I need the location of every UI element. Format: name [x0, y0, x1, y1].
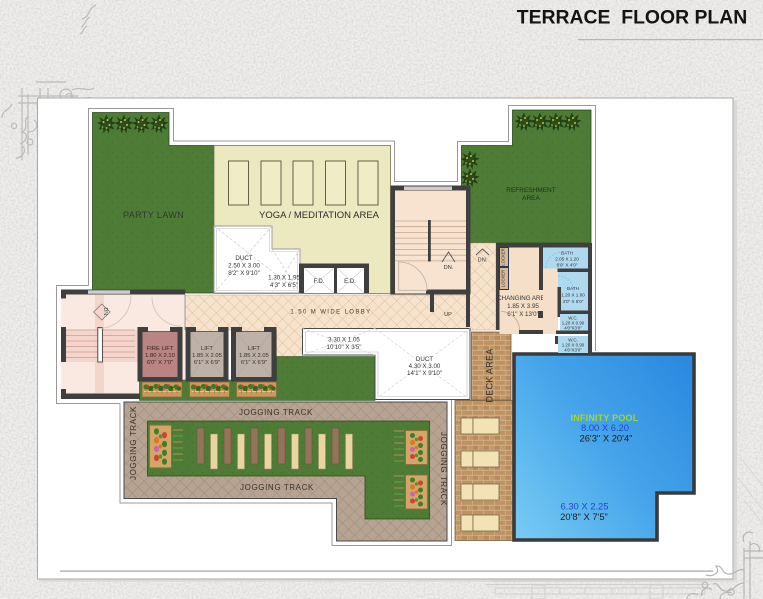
svg-text:2.05 X 1.20: 2.05 X 1.20 — [555, 257, 579, 262]
svg-text:DN.: DN. — [444, 265, 454, 271]
svg-text:DECK AREA: DECK AREA — [485, 348, 495, 402]
svg-text:1.20 X 1.80: 1.20 X 1.80 — [561, 293, 585, 298]
svg-text:1.80 X 2.10: 1.80 X 2.10 — [145, 353, 175, 359]
svg-text:6'1" X 6'9": 6'1" X 6'9" — [241, 360, 267, 366]
svg-text:3.30 X 1.05: 3.30 X 1.05 — [328, 337, 360, 344]
svg-text:BATH: BATH — [561, 251, 573, 256]
svg-text:6'9" X 4'0": 6'9" X 4'0" — [557, 263, 578, 268]
svg-text:JOGGING TRACK: JOGGING TRACK — [129, 406, 138, 480]
svg-text:6.30 X 2.25: 6.30 X 2.25 — [561, 501, 609, 512]
svg-text:6'1" X 6'9": 6'1" X 6'9" — [194, 360, 220, 366]
svg-text:LOCKER: LOCKER — [501, 248, 506, 265]
svg-text:10'10" X 3'5": 10'10" X 3'5" — [327, 344, 362, 351]
svg-text:DUCT: DUCT — [416, 356, 433, 363]
svg-text:14'1" X 9'10": 14'1" X 9'10" — [407, 370, 442, 377]
svg-text:JOGGING TRACK: JOGGING TRACK — [439, 432, 448, 506]
svg-text:4'0"X3'0": 4'0"X3'0" — [564, 348, 582, 353]
svg-text:REFRESHMENT: REFRESHMENT — [506, 187, 556, 194]
svg-text:LIFT: LIFT — [248, 346, 260, 352]
svg-text:1.85 X 3.95: 1.85 X 3.95 — [507, 303, 539, 310]
svg-text:2.50 X 3.00: 2.50 X 3.00 — [228, 263, 260, 270]
svg-text:26'3" X 20'4": 26'3" X 20'4" — [580, 433, 633, 444]
svg-text:AREA: AREA — [522, 195, 540, 202]
svg-text:YOGA / MEDITATION AREA: YOGA / MEDITATION AREA — [259, 210, 380, 221]
svg-text:PARTY LAWN: PARTY LAWN — [123, 210, 184, 220]
svg-text:8'2" X 9'10": 8'2" X 9'10" — [228, 270, 260, 277]
svg-text:CHANGING AREA: CHANGING AREA — [497, 295, 549, 302]
svg-text:1.30 X 1.95: 1.30 X 1.95 — [268, 275, 300, 282]
svg-text:FIRE LIFT: FIRE LIFT — [147, 346, 174, 352]
svg-text:1.85 X 2.05: 1.85 X 2.05 — [192, 353, 222, 359]
svg-text:4'0"X3'0": 4'0"X3'0" — [564, 326, 582, 331]
svg-text:20'8" X 7'5": 20'8" X 7'5" — [560, 511, 608, 522]
svg-text:6'1" X 13'0": 6'1" X 13'0" — [507, 311, 539, 318]
svg-text:BATH: BATH — [567, 286, 579, 291]
svg-text:E.D.: E.D. — [344, 279, 356, 285]
svg-text:F.D.: F.D. — [314, 279, 325, 285]
svg-text:TERRACE FLOOR PLAN: TERRACE FLOOR PLAN — [517, 7, 748, 29]
svg-text:JOGGING TRACK: JOGGING TRACK — [240, 483, 314, 492]
svg-text:4.30 X 3.00: 4.30 X 3.00 — [409, 363, 441, 370]
svg-text:DN.: DN. — [478, 258, 488, 264]
svg-text:DUCT: DUCT — [235, 255, 252, 262]
svg-text:4'0" X 6'0": 4'0" X 6'0" — [563, 299, 584, 304]
svg-text:JOGGING TRACK: JOGGING TRACK — [239, 408, 313, 417]
svg-text:LOCKER: LOCKER — [501, 270, 506, 287]
svg-text:4'3" X 6'5": 4'3" X 6'5" — [270, 282, 298, 289]
svg-text:8.00 X 6.20: 8.00 X 6.20 — [581, 422, 629, 433]
svg-text:DN.: DN. — [102, 307, 108, 316]
svg-text:UP: UP — [444, 312, 452, 318]
svg-text:6'0" X 7'0": 6'0" X 7'0" — [147, 360, 173, 366]
svg-text:1.50 M WIDE LOBBY: 1.50 M WIDE LOBBY — [290, 310, 371, 316]
